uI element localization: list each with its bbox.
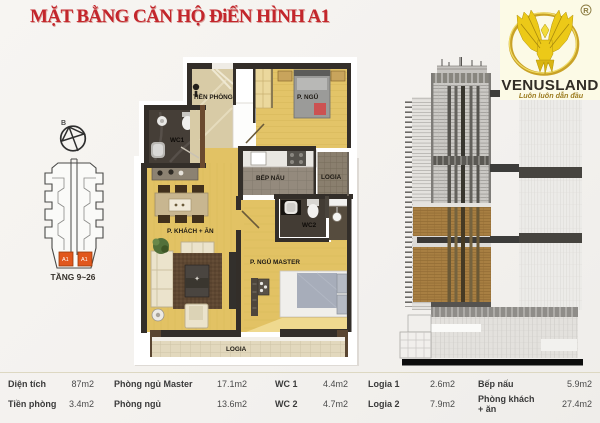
svg-text:LOGIA: LOGIA [226,346,247,353]
svg-text:R: R [583,6,589,15]
svg-text:B: B [61,120,66,127]
svg-text:A1: A1 [81,257,88,263]
svg-text:TẦNG 9~26: TẦNG 9~26 [51,272,96,282]
svg-text:P. NGỦ MASTER: P. NGỦ MASTER [250,257,300,266]
svg-text:WC1: WC1 [170,137,185,144]
svg-text:P. KHÁCH + ĂN: P. KHÁCH + ĂN [167,226,214,235]
svg-text:Luôn luôn dẫn đầu: Luôn luôn dẫn đầu [519,91,584,100]
svg-text:WC2: WC2 [302,222,317,229]
svg-text:A1: A1 [62,257,69,263]
svg-text:✦: ✦ [194,275,200,283]
svg-text:P. NGỦ: P. NGỦ [297,92,319,101]
svg-text:LOGIA: LOGIA [321,174,342,181]
